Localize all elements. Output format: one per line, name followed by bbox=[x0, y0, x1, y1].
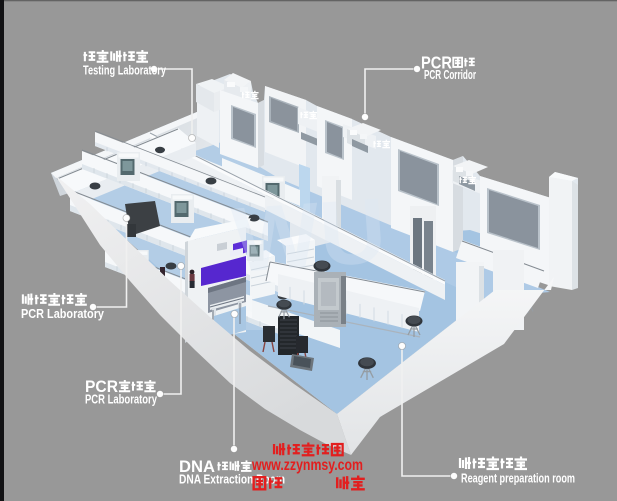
svg-text:www.zzynmsy.com: www.zzynmsy.com bbox=[251, 457, 363, 474]
svg-text:WU: WU bbox=[229, 180, 389, 292]
svg-text:Reagent preparation room: Reagent preparation room bbox=[461, 472, 575, 486]
svg-text:PCR Laboratory: PCR Laboratory bbox=[85, 393, 157, 407]
svg-text:PCR Laboratory: PCR Laboratory bbox=[21, 307, 104, 321]
svg-text:PCR Corridor: PCR Corridor bbox=[424, 68, 476, 82]
svg-text:Testing Laboratory: Testing Laboratory bbox=[83, 63, 167, 78]
